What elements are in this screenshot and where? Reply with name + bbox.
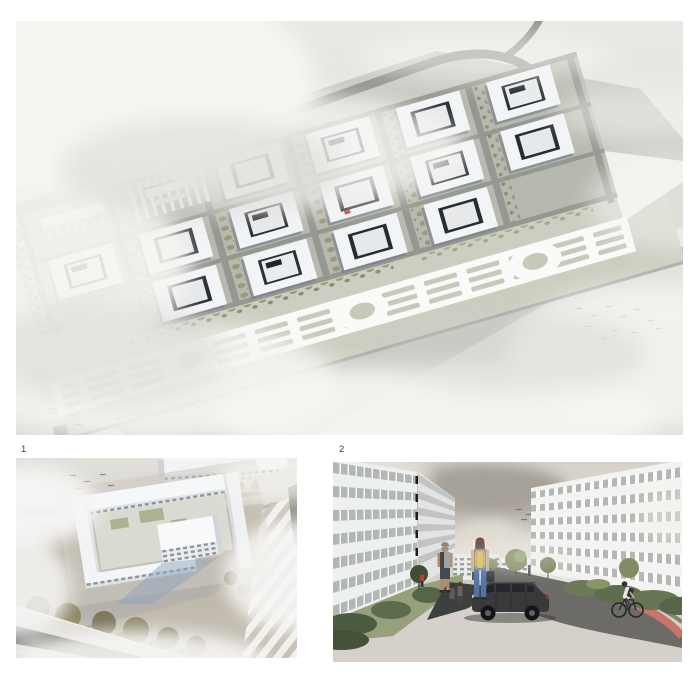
masterplan-render: [16, 21, 683, 435]
street-view-render: [333, 462, 682, 662]
street-view-figure: [333, 462, 682, 662]
masterplan-aerial-figure: [16, 21, 683, 435]
courtyard-block-render: [16, 458, 297, 658]
pedestrian-red-figure: [420, 571, 424, 587]
handbag: [487, 571, 495, 582]
figure-2-label: 2: [339, 444, 345, 455]
figure-1-label: 1: [21, 444, 27, 455]
presentation-board: 1 2: [0, 0, 700, 700]
taillight: [546, 595, 549, 599]
courtyard-block-figure: [16, 458, 297, 658]
